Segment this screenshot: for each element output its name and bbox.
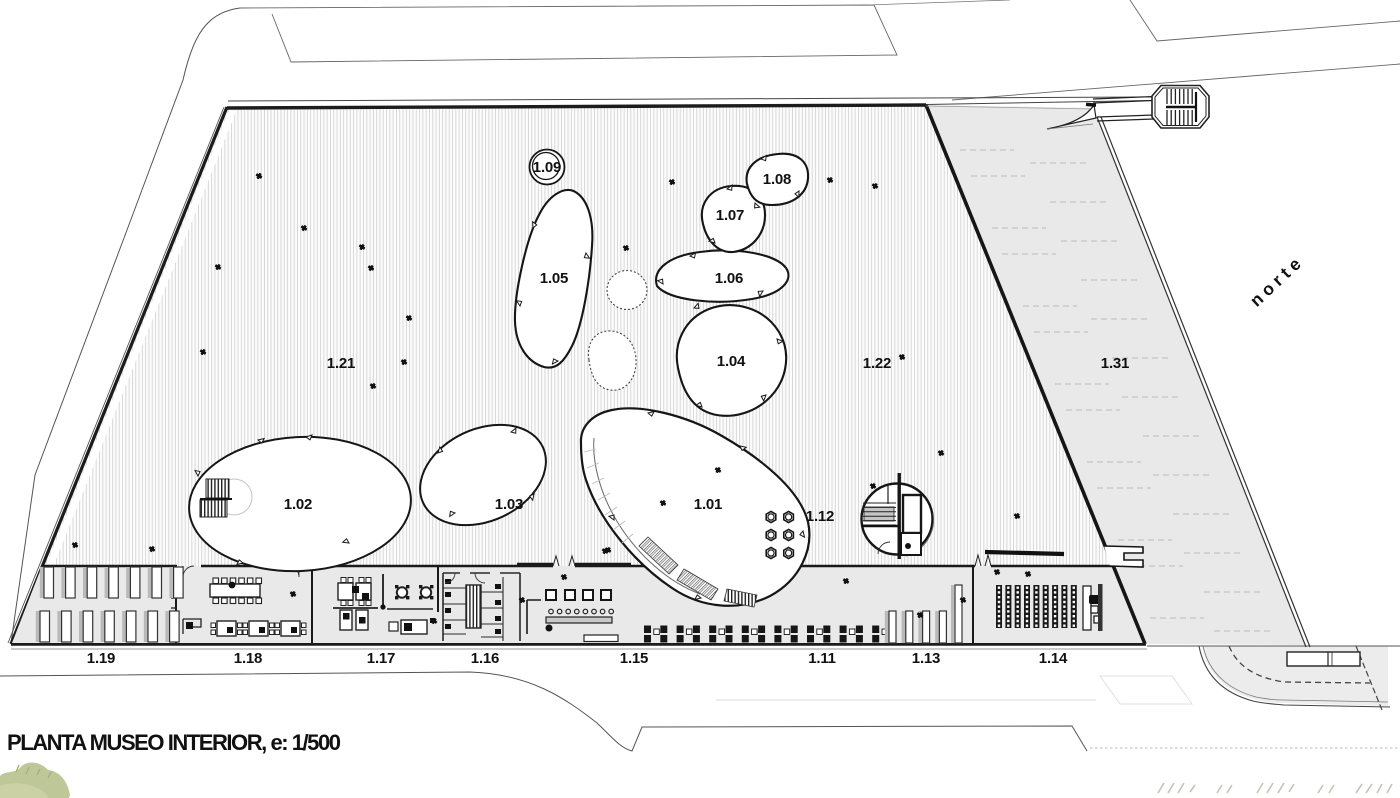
svg-text:1.14: 1.14 (1039, 650, 1068, 667)
svg-text:1.05: 1.05 (540, 270, 568, 287)
svg-text:1.04: 1.04 (717, 353, 746, 370)
svg-text:1.06: 1.06 (715, 270, 743, 287)
svg-text:1.22: 1.22 (863, 355, 891, 372)
svg-text:1.03: 1.03 (495, 496, 523, 513)
svg-text:1.13: 1.13 (912, 650, 940, 667)
svg-text:1.02: 1.02 (284, 496, 312, 513)
svg-text:1.15: 1.15 (620, 650, 648, 667)
svg-text:1.16: 1.16 (471, 650, 499, 667)
svg-text:1.09: 1.09 (533, 159, 561, 176)
svg-text:1.01: 1.01 (694, 496, 722, 513)
svg-text:1.19: 1.19 (87, 650, 115, 667)
svg-text:1.11: 1.11 (808, 650, 836, 667)
svg-text:1.21: 1.21 (327, 355, 355, 372)
svg-text:1.07: 1.07 (716, 207, 744, 224)
svg-text:1.08: 1.08 (763, 171, 791, 188)
svg-text:1.31: 1.31 (1101, 355, 1129, 372)
svg-text:1.12: 1.12 (806, 508, 834, 525)
svg-text:PLANTA MUSEO INTERIOR, e: 1/50: PLANTA MUSEO INTERIOR, e: 1/500 (7, 730, 341, 755)
svg-text:1.17: 1.17 (367, 650, 395, 667)
svg-text:1.18: 1.18 (234, 650, 262, 667)
